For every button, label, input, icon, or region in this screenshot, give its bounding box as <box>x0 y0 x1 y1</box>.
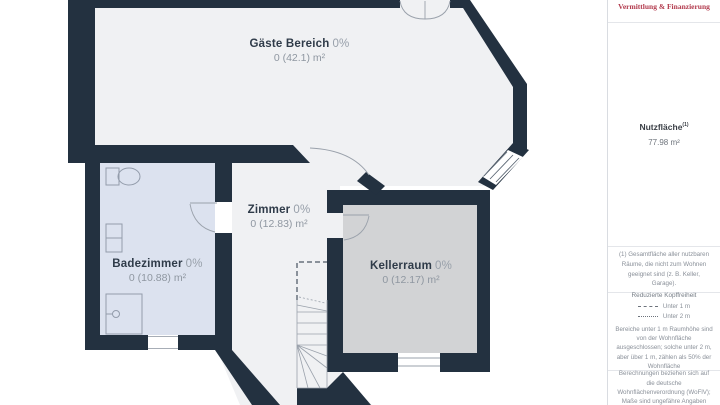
legend-label: Unter 1 m <box>663 303 690 310</box>
info-sidebar: Vermittlung & Finanzierung Nutzfläche(1)… <box>607 0 720 405</box>
floorplan-page: Gäste Bereich0% 0 (42.1) m² Zimmer0% 0 (… <box>0 0 720 405</box>
summary-value: 77.98 m² <box>648 138 680 147</box>
legend-row-under-1m: Unter 1 m <box>638 303 690 310</box>
headroom-legend-section: Reduzierte Kopffreiheit Unter 1 m Unter … <box>608 293 720 371</box>
door-badezimmer-exterior <box>148 335 178 350</box>
window-kellerraum <box>398 353 440 372</box>
footnote-section: (1) Gesamtfläche aller nutzbaren Räume, … <box>608 247 720 293</box>
disclaimer-section: Berechnungen beziehen sich auf die deuts… <box>608 371 720 405</box>
floor-plan-drawing <box>0 0 607 405</box>
headroom-title: Reduzierte Kopffreiheit <box>632 292 697 299</box>
room-badezimmer-floor <box>100 163 215 335</box>
summary-label: Nutzfläche(1) <box>639 122 688 132</box>
brand-logo: Vermittlung & Finanzierung <box>608 0 720 23</box>
footnote-marker: (1) <box>682 122 688 128</box>
legend-row-under-2m: Unter 2 m <box>638 313 690 320</box>
footnote-text: (1) Gesamtfläche aller nutzbaren Räume, … <box>615 250 713 288</box>
floor-plan: Gäste Bereich0% 0 (42.1) m² Zimmer0% 0 (… <box>0 0 607 405</box>
legend-label: Unter 2 m <box>663 313 690 320</box>
brand-logo-text: Vermittlung & Finanzierung <box>618 2 710 11</box>
headroom-description: Bereiche unter 1 m Raumhöhe sind von der… <box>613 325 715 371</box>
disclaimer-text: Berechnungen beziehen sich auf die deuts… <box>614 369 714 405</box>
room-kellerraum-floor <box>343 205 477 353</box>
dotted-line-icon <box>638 316 658 317</box>
dashed-line-icon <box>638 306 658 307</box>
area-summary: Nutzfläche(1) 77.98 m² <box>608 23 720 247</box>
